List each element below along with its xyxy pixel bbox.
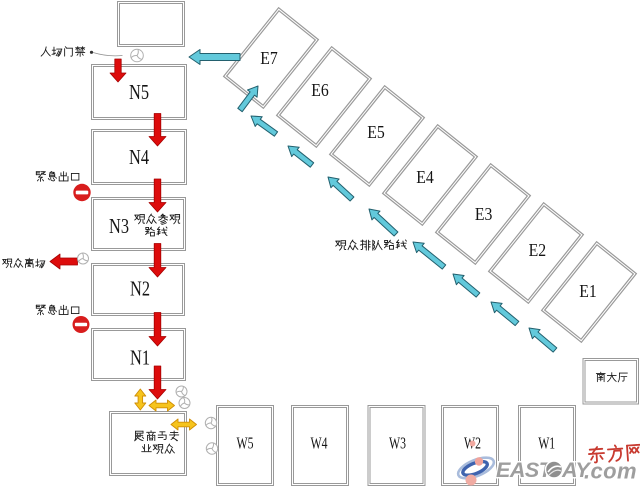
svg-text:E2: E2 [529, 240, 547, 260]
svg-text:E4: E4 [416, 167, 434, 187]
svg-text:W5: W5 [237, 434, 254, 453]
svg-text:W3: W3 [389, 434, 406, 453]
svg-text:.com: .com [584, 459, 637, 484]
svg-text:N4: N4 [129, 145, 149, 169]
svg-text:N2: N2 [130, 277, 150, 301]
svg-text:E5: E5 [367, 122, 385, 142]
svg-text:E7: E7 [260, 48, 278, 68]
svg-text:E1: E1 [579, 281, 597, 301]
svg-text:E3: E3 [475, 204, 493, 224]
svg-text:E6: E6 [311, 80, 329, 100]
svg-text:N1: N1 [130, 346, 150, 370]
svg-text:N5: N5 [129, 80, 149, 104]
svg-text:W4: W4 [311, 434, 328, 453]
svg-text:W1: W1 [538, 434, 555, 453]
svg-text:N3: N3 [109, 214, 129, 238]
